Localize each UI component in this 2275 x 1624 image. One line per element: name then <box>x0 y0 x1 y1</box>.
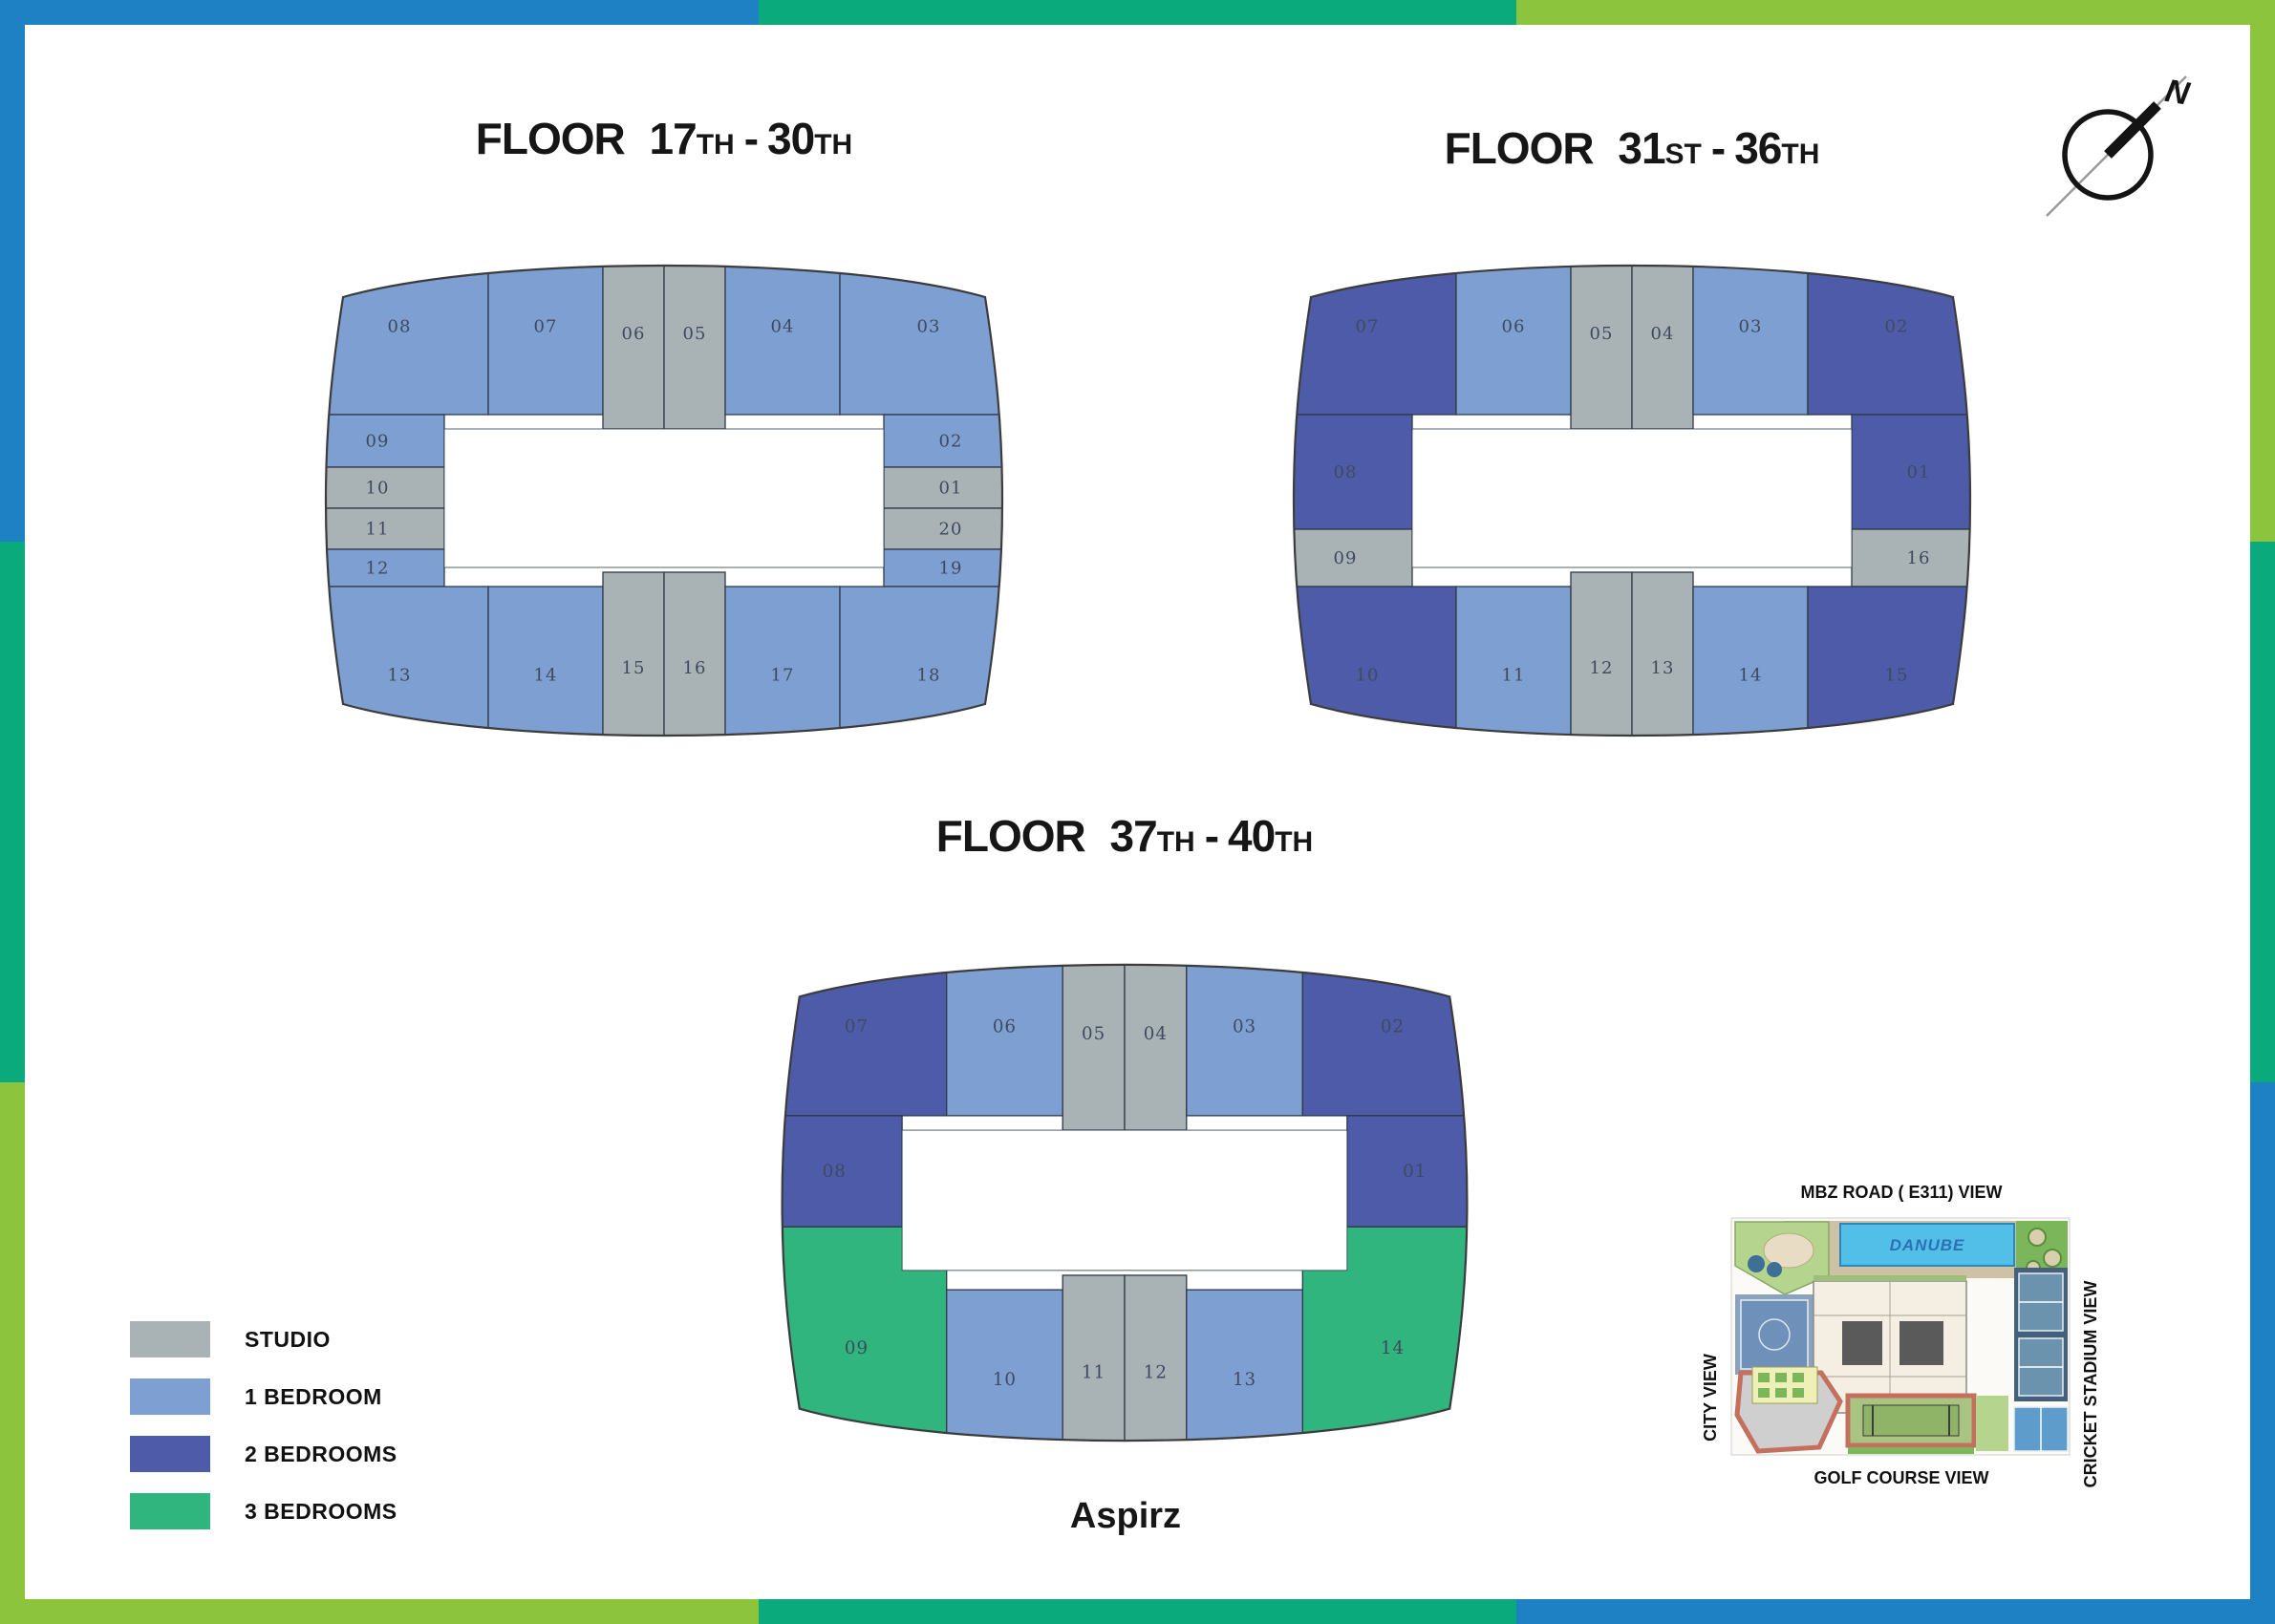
unit-label-13: 13 <box>1651 658 1675 678</box>
unit-label-09: 09 <box>845 1338 869 1358</box>
page: { "frame": { "blue": "#1e81c4", "teal": … <box>0 0 2275 1624</box>
unit-label-01: 01 <box>1403 1162 1427 1182</box>
hedge <box>1848 1447 1974 1454</box>
unit-label-03: 03 <box>917 317 941 337</box>
unit-label-19: 19 <box>939 559 963 579</box>
unit-label-16: 16 <box>1907 548 1931 568</box>
roof-garden-cell <box>1792 1373 1804 1382</box>
core-block <box>1842 1321 1882 1365</box>
legend-label-1-bedroom: 1 BEDROOM <box>245 1384 382 1410</box>
unit-label-08: 08 <box>1334 462 1358 482</box>
unit-label-01: 01 <box>1907 462 1931 482</box>
unit-label-10: 10 <box>366 479 390 499</box>
title-to: 30 <box>767 114 814 163</box>
legend-row-2-bedrooms: 2 BEDROOMS <box>130 1435 397 1473</box>
unit-label-09: 09 <box>1334 548 1358 568</box>
unit-label-20: 20 <box>939 520 963 540</box>
unit-label-04: 04 <box>1144 1024 1168 1044</box>
courtyard <box>1412 429 1852 567</box>
unit-label-14: 14 <box>1381 1338 1405 1358</box>
unit-label-06: 06 <box>1502 317 1526 337</box>
unit-label-15: 15 <box>1885 666 1909 686</box>
unit-label-04: 04 <box>1651 324 1675 344</box>
unit-label-06: 06 <box>622 324 646 344</box>
unit-label-07: 07 <box>1356 317 1380 337</box>
title-floor-17-30: FLOOR 17TH-30TH <box>282 113 1046 164</box>
frame-top-blue <box>0 0 759 25</box>
unit-label-16: 16 <box>683 658 707 678</box>
roof-garden-cell <box>1758 1388 1770 1398</box>
unit-label-10: 10 <box>993 1370 1017 1390</box>
unit-label-05: 05 <box>1082 1024 1105 1044</box>
site-map-illustration: DANUBE <box>1729 1208 2073 1459</box>
title-from: 31 <box>1618 123 1664 173</box>
title-from: 17 <box>650 114 697 163</box>
planter <box>2028 1229 2046 1246</box>
legend-label-3-bedrooms: 3 BEDROOMS <box>245 1499 397 1525</box>
unit-label-12: 12 <box>366 559 390 579</box>
title-to: 36 <box>1734 123 1781 173</box>
title-from-suffix: ST <box>1665 139 1702 170</box>
unit-label-09: 09 <box>366 432 390 452</box>
amenity-building <box>1752 1367 1817 1403</box>
unit-label-08: 08 <box>823 1162 847 1182</box>
unit-label-11: 11 <box>366 520 390 540</box>
title-dash: - <box>1711 123 1725 173</box>
roof-garden-cell <box>1775 1388 1787 1398</box>
unit-label-14: 14 <box>1739 666 1763 686</box>
unit-label-11: 11 <box>1082 1362 1105 1382</box>
frame-bottom-blue <box>1516 1599 2275 1624</box>
roof-garden-cell <box>1792 1388 1804 1398</box>
frame-top-teal <box>759 0 1517 25</box>
title-to-suffix: TH <box>1275 826 1313 858</box>
hedge <box>1814 1275 1966 1281</box>
title-dash: - <box>744 114 758 163</box>
unit-label-12: 12 <box>1590 658 1614 678</box>
unit-label-06: 06 <box>993 1016 1017 1036</box>
unit-label-17: 17 <box>771 666 795 686</box>
spa-tub <box>1748 1255 1765 1272</box>
unit-label-02: 02 <box>1381 1016 1405 1036</box>
playground <box>1764 1233 1814 1268</box>
title-to-suffix: TH <box>1781 139 1819 170</box>
unit-label-05: 05 <box>1590 324 1614 344</box>
site-map-label-mbz-road: MBZ ROAD ( E311) VIEW <box>1726 1183 2077 1203</box>
legend-row-1-bedroom: 1 BEDROOM <box>130 1378 397 1416</box>
frame-left-blue <box>0 0 25 542</box>
title-from-suffix: TH <box>1157 826 1195 858</box>
courtyard <box>902 1130 1347 1271</box>
unit-label-04: 04 <box>771 317 795 337</box>
legend: STUDIO 1 BEDROOM 2 BEDROOMS 3 BEDROOMS <box>130 1320 397 1549</box>
legend-label-2-bedrooms: 2 BEDROOMS <box>245 1442 397 1467</box>
pool-brand-label: DANUBE <box>1890 1236 1965 1254</box>
compass-north-label: N <box>2162 73 2193 113</box>
title-floor-37-40: FLOOR 37TH-40TH <box>738 810 1512 862</box>
frame-top-green <box>1516 0 2275 25</box>
site-map-label-cricket-stadium-view: CRICKET STADIUM VIEW <box>2079 1279 2102 1489</box>
legend-swatch-1-bedroom <box>130 1378 210 1415</box>
unit-label-10: 10 <box>1356 666 1380 686</box>
legend-row-studio: STUDIO <box>130 1320 397 1358</box>
unit-label-03: 03 <box>1739 317 1763 337</box>
frame-top <box>0 0 2275 25</box>
unit-label-18: 18 <box>917 666 941 686</box>
unit-label-07: 07 <box>845 1016 869 1036</box>
frame-bottom <box>0 1599 2275 1624</box>
floorplan-31-36: 07060504030208090116101112131415 <box>1250 237 2014 764</box>
roof-garden-cell <box>1775 1373 1787 1382</box>
unit-label-02: 02 <box>939 432 963 452</box>
frame-left <box>0 0 25 1624</box>
frame-right-teal <box>2250 542 2275 1083</box>
unit-label-11: 11 <box>1502 666 1526 686</box>
frame-bottom-green <box>0 1599 759 1624</box>
basketball-court <box>1741 1300 1808 1369</box>
courtyard <box>444 429 884 567</box>
cricket-pitch-lane <box>1863 1405 1959 1436</box>
brand-name: Aspirz <box>934 1496 1317 1537</box>
site-map-label-golf-course-view: GOLF COURSE VIEW <box>1726 1468 2077 1488</box>
compass-icon: N <box>2033 55 2224 227</box>
frame-right-blue <box>2250 1082 2275 1624</box>
unit-label-12: 12 <box>1144 1362 1168 1382</box>
unit-label-05: 05 <box>683 324 707 344</box>
frame-left-teal <box>0 542 25 1083</box>
unit-label-13: 13 <box>388 666 412 686</box>
site-map-graphic: DANUBE <box>1729 1208 2073 1459</box>
title-floor-31-36: FLOOR 31ST-36TH <box>1250 122 2014 174</box>
unit-label-07: 07 <box>534 317 558 337</box>
roof-garden-cell <box>1758 1373 1770 1382</box>
core-block <box>1899 1321 1943 1365</box>
frame-right <box>2250 0 2275 1624</box>
site-map-label-city-view: CITY VIEW <box>1699 1293 1722 1503</box>
lawn <box>1976 1396 2008 1451</box>
unit-label-13: 13 <box>1233 1370 1256 1390</box>
planter <box>2044 1250 2061 1267</box>
title-dash: - <box>1205 811 1218 861</box>
legend-label-studio: STUDIO <box>245 1327 331 1353</box>
unit-label-08: 08 <box>388 317 412 337</box>
unit-label-14: 14 <box>534 666 558 686</box>
legend-swatch-studio <box>130 1321 210 1357</box>
site-map: MBZ ROAD ( E311) VIEW DANUBE <box>1726 1183 2077 1488</box>
legend-row-3-bedrooms: 3 BEDROOMS <box>130 1492 397 1530</box>
title-to: 40 <box>1228 811 1275 861</box>
title-word: FLOOR <box>1445 123 1594 173</box>
title-to-suffix: TH <box>814 129 852 160</box>
floorplan-37-40: 0706050403020801091410111213 <box>738 934 1512 1471</box>
title-from: 37 <box>1110 811 1157 861</box>
title-from-suffix: TH <box>697 129 735 160</box>
floorplan-17-30: 0807060504030201201909101112131415161718 <box>282 237 1046 764</box>
unit-label-02: 02 <box>1885 317 1909 337</box>
frame-bottom-teal <box>759 1599 1517 1624</box>
spa-tub <box>1767 1262 1782 1277</box>
unit-label-03: 03 <box>1233 1016 1256 1036</box>
frame-right-green <box>2250 0 2275 542</box>
unit-label-15: 15 <box>622 658 646 678</box>
title-word: FLOOR <box>476 114 625 163</box>
legend-swatch-3-bedrooms <box>130 1493 210 1529</box>
unit-label-01: 01 <box>939 479 963 499</box>
legend-swatch-2-bedrooms <box>130 1436 210 1472</box>
title-word: FLOOR <box>936 811 1085 861</box>
frame-left-green <box>0 1082 25 1624</box>
